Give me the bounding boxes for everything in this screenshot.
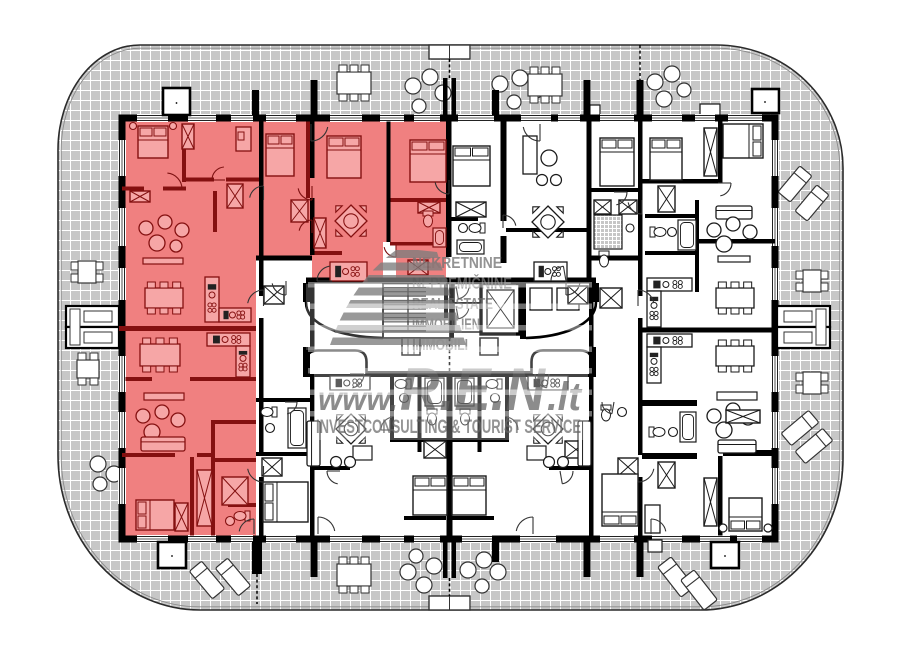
svg-text:NEKRETNINE: NEKRETNINE	[412, 255, 502, 272]
svg-text:INVESTCONSULTING & TOURIST SER: INVESTCONSULTING & TOURIST SERVICE	[316, 417, 581, 438]
